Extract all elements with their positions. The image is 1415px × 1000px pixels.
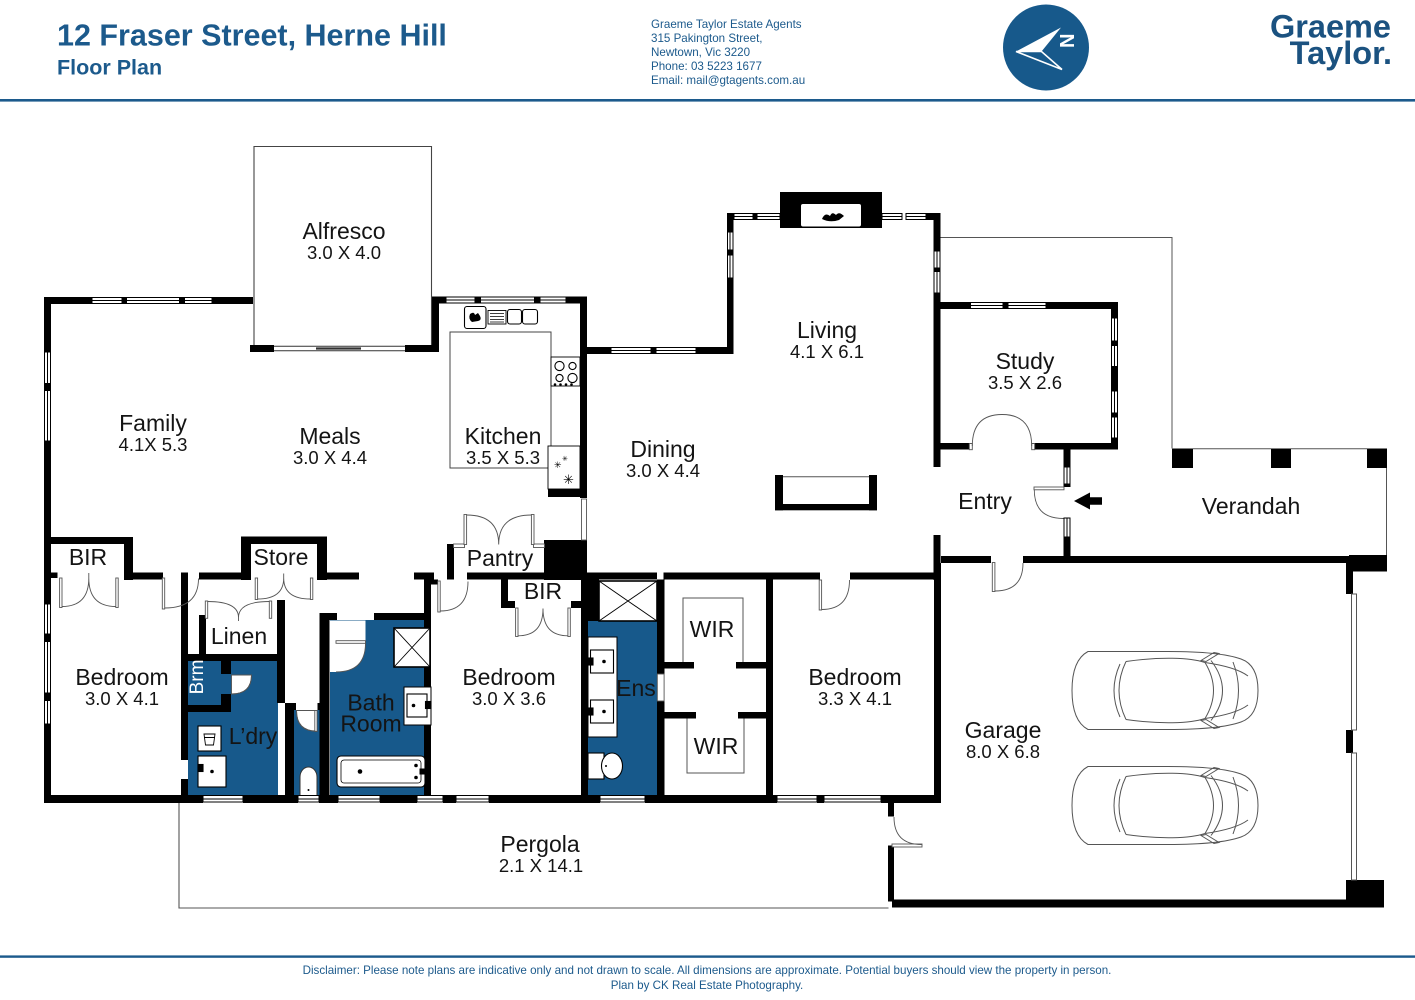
- svg-text:3.0 X 4.4: 3.0 X 4.4: [626, 460, 700, 481]
- svg-text:Garage: Garage: [965, 717, 1042, 743]
- svg-text:3.5 X 5.3: 3.5 X 5.3: [466, 447, 540, 468]
- svg-text:Bedroom: Bedroom: [75, 664, 168, 690]
- svg-text:3.3 X 4.1: 3.3 X 4.1: [818, 688, 892, 709]
- svg-text:L’dry: L’dry: [229, 723, 278, 749]
- svg-text:Disclaimer: Please note plans: Disclaimer: Please note plans are indica…: [303, 964, 1112, 977]
- svg-text:Store: Store: [254, 544, 309, 570]
- svg-text:Meals: Meals: [299, 423, 360, 449]
- svg-text:Living: Living: [797, 317, 857, 343]
- svg-text:✳: ✳: [554, 460, 562, 470]
- svg-text:Study: Study: [996, 348, 1055, 374]
- svg-text:BIR: BIR: [69, 544, 107, 570]
- svg-text:WIR: WIR: [690, 616, 735, 642]
- svg-text:4.1 X 6.1: 4.1 X 6.1: [790, 341, 864, 362]
- svg-text:Pergola: Pergola: [500, 831, 579, 857]
- svg-text:3.0 X 4.4: 3.0 X 4.4: [293, 447, 367, 468]
- svg-text:Graeme Taylor Estate Agents: Graeme Taylor Estate Agents: [651, 18, 802, 31]
- svg-text:Taylor.: Taylor.: [1290, 35, 1392, 71]
- svg-text:Verandah: Verandah: [1202, 493, 1300, 519]
- svg-text:Phone: 03 5223 1677: Phone: 03 5223 1677: [651, 60, 762, 73]
- svg-text:Floor Plan: Floor Plan: [57, 56, 162, 80]
- svg-text:Alfresco: Alfresco: [302, 218, 385, 244]
- svg-text:Plan by CK Real Estate Photogr: Plan by CK Real Estate Photography.: [611, 979, 803, 992]
- svg-text:Email: mail@gtagents.com.au: Email: mail@gtagents.com.au: [651, 74, 805, 87]
- svg-text:Newtown, Vic 3220: Newtown, Vic 3220: [651, 46, 750, 59]
- svg-text:N: N: [1057, 34, 1079, 48]
- svg-text:3.0 X 3.6: 3.0 X 3.6: [472, 688, 546, 709]
- svg-text:3.5 X 2.6: 3.5 X 2.6: [988, 372, 1062, 393]
- svg-text:3.0 X 4.0: 3.0 X 4.0: [307, 242, 381, 263]
- svg-text:Family: Family: [119, 410, 187, 436]
- svg-text:12 Fraser Street, Herne Hill: 12 Fraser Street, Herne Hill: [57, 19, 447, 53]
- svg-text:4.1X 5.3: 4.1X 5.3: [119, 434, 188, 455]
- svg-text:Entry: Entry: [958, 488, 1012, 514]
- svg-text:Kitchen: Kitchen: [465, 423, 542, 449]
- svg-text:Ens: Ens: [616, 675, 656, 701]
- svg-text:Linen: Linen: [211, 623, 267, 649]
- svg-text:Bedroom: Bedroom: [808, 664, 901, 690]
- svg-text:315 Pakington Street,: 315 Pakington Street,: [651, 32, 763, 45]
- svg-text:8.0 X 6.8: 8.0 X 6.8: [966, 741, 1040, 762]
- svg-text:Room: Room: [340, 711, 401, 737]
- svg-text:Pantry: Pantry: [467, 545, 534, 571]
- svg-text:Dining: Dining: [630, 436, 695, 462]
- svg-text:Bedroom: Bedroom: [462, 664, 555, 690]
- svg-text:BIR: BIR: [524, 578, 562, 604]
- svg-text:Brm: Brm: [187, 660, 208, 695]
- svg-text:3.0 X 4.1: 3.0 X 4.1: [85, 688, 159, 709]
- svg-text:2.1 X 14.1: 2.1 X 14.1: [499, 855, 583, 876]
- svg-text:WIR: WIR: [694, 733, 739, 759]
- svg-text:✳: ✳: [562, 455, 568, 463]
- svg-text:✳: ✳: [563, 472, 574, 487]
